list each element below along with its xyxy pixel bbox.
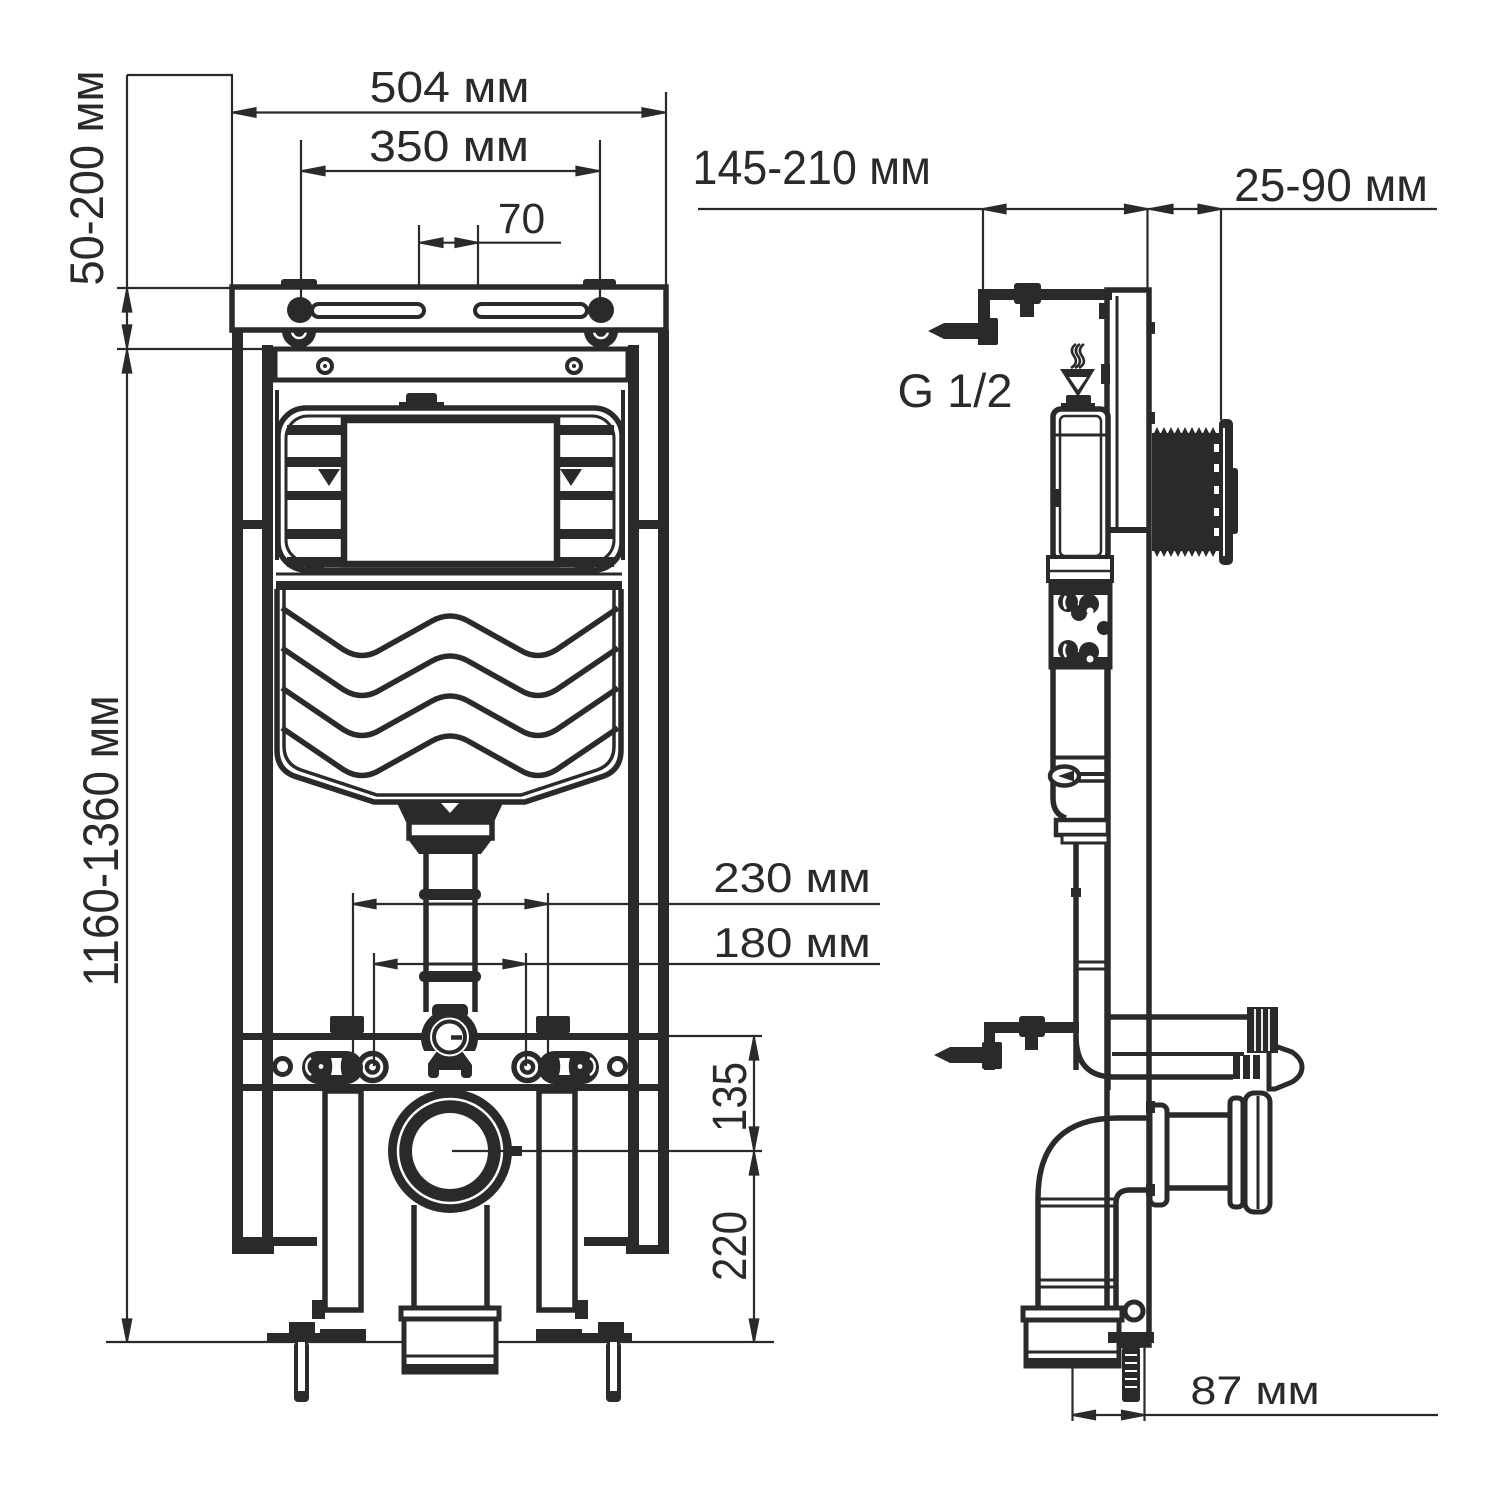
svg-text:25-90 мм: 25-90 мм	[1234, 159, 1428, 211]
svg-text:220: 220	[702, 1211, 756, 1281]
svg-text:87 мм: 87 мм	[1190, 1369, 1319, 1413]
svg-text:G 1/2: G 1/2	[898, 364, 1013, 417]
svg-text:1160-1360 мм: 1160-1360 мм	[74, 695, 129, 986]
svg-text:145-210 мм: 145-210 мм	[693, 141, 931, 195]
svg-text:180 мм: 180 мм	[713, 920, 871, 967]
svg-text:135: 135	[702, 1062, 756, 1132]
svg-text:350 мм: 350 мм	[369, 121, 529, 171]
svg-text:230 мм: 230 мм	[713, 855, 871, 902]
svg-text:50-200 мм: 50-200 мм	[60, 71, 113, 286]
svg-text:70: 70	[498, 196, 545, 243]
svg-text:504 мм: 504 мм	[370, 62, 530, 112]
